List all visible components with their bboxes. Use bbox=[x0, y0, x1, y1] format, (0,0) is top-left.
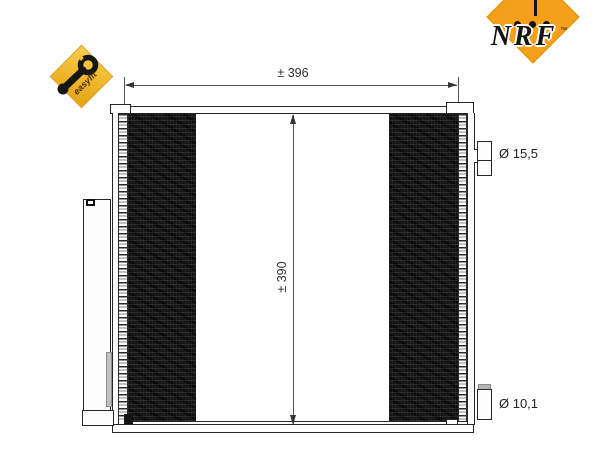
dimension-line bbox=[293, 115, 294, 424]
core-bottom-line bbox=[128, 421, 467, 422]
nrf-logo-text: NRF bbox=[483, 22, 565, 52]
top-port-diameter-label: Ø 15,5 bbox=[499, 146, 538, 161]
top-port bbox=[477, 141, 492, 176]
width-dimension-label: ± 396 bbox=[253, 66, 333, 80]
bracket-foot bbox=[82, 410, 114, 426]
bracket-tab bbox=[86, 199, 95, 206]
arrow-right-icon bbox=[448, 82, 457, 88]
bottom-port bbox=[477, 389, 492, 420]
arrow-left-icon bbox=[125, 82, 134, 88]
nrf-stem-icon bbox=[534, 0, 537, 16]
top-header-bar bbox=[112, 106, 474, 114]
left-tube-ends bbox=[118, 114, 128, 421]
bottom-port-diameter-label: Ø 10,1 bbox=[499, 396, 538, 411]
extension-line bbox=[458, 77, 459, 104]
right-tube-ends bbox=[458, 114, 467, 421]
product-image-condenser: NRF ™ easyfit ± 396 bbox=[0, 0, 600, 450]
wrench-icon bbox=[48, 44, 110, 106]
bottom-header-bar bbox=[112, 424, 474, 433]
arrow-up-icon bbox=[290, 114, 296, 124]
arrow-down-icon bbox=[290, 415, 296, 425]
bracket-gray-strip bbox=[106, 352, 112, 407]
right-fin-core bbox=[389, 114, 458, 421]
dimension-line bbox=[126, 85, 457, 86]
height-dimension-label: ± 390 bbox=[275, 246, 289, 308]
left-fin-core bbox=[128, 114, 196, 421]
bottom-left-corner-block bbox=[124, 414, 133, 424]
top-port-divider bbox=[478, 160, 491, 161]
nrf-trademark: ™ bbox=[560, 27, 567, 34]
